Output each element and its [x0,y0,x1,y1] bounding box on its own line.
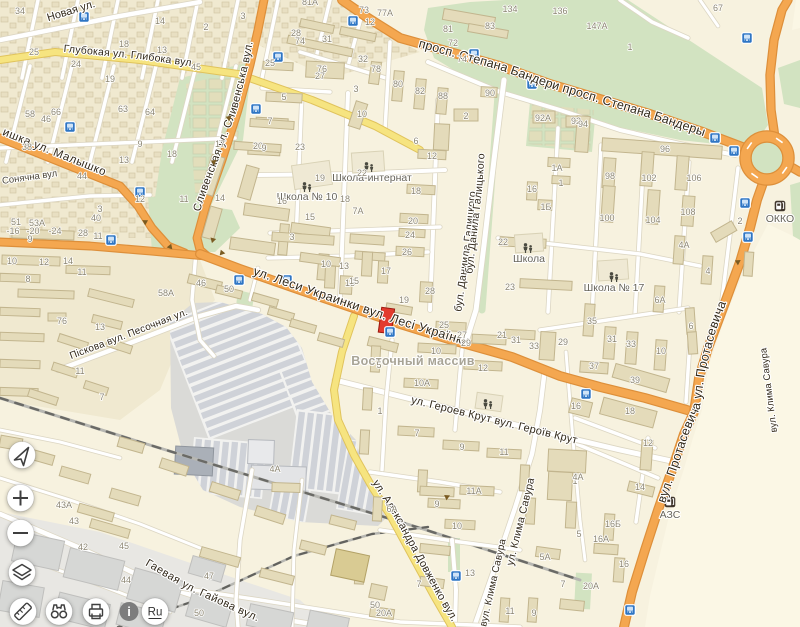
svg-text:12: 12 [39,257,49,267]
svg-text:82: 82 [415,86,425,96]
svg-text:10: 10 [7,256,17,266]
svg-text:44: 44 [121,575,131,585]
svg-text:9: 9 [137,139,142,149]
svg-text:136: 136 [552,6,567,16]
svg-text:46: 46 [41,114,51,124]
svg-text:33: 33 [529,341,539,351]
svg-text:16: 16 [619,559,629,569]
svg-text:11: 11 [93,231,102,241]
svg-text:9: 9 [459,442,464,452]
svg-text:16: 16 [277,196,287,206]
svg-text:80: 80 [393,79,403,89]
svg-text:25: 25 [29,47,39,57]
svg-text:67: 67 [713,3,723,13]
svg-text:32: 32 [358,54,368,64]
svg-text:11: 11 [505,606,514,616]
svg-text:7: 7 [560,579,565,589]
svg-text:108: 108 [680,207,695,217]
svg-text:74: 74 [457,54,467,64]
svg-text:134: 134 [502,4,517,14]
svg-text:22: 22 [498,237,508,247]
svg-text:14: 14 [635,482,645,492]
svg-text:3: 3 [353,84,358,94]
svg-text:12: 12 [643,438,653,448]
svg-text:12: 12 [427,151,437,161]
svg-text:92А: 92А [535,113,551,123]
svg-text:6А: 6А [654,295,665,305]
svg-text:Ru: Ru [148,607,163,619]
svg-text:13: 13 [119,155,129,165]
svg-text:76: 76 [57,316,67,326]
svg-text:7: 7 [416,579,421,589]
svg-text:74: 74 [295,36,305,46]
svg-text:90: 90 [485,88,495,98]
svg-text:45: 45 [191,62,201,72]
svg-text:1А: 1А [551,163,562,173]
svg-text:35: 35 [587,316,597,326]
svg-text:10А: 10А [414,378,430,388]
svg-text:5: 5 [576,529,581,539]
svg-text:1Б: 1Б [541,202,552,212]
svg-text:58А: 58А [158,288,174,298]
svg-text:9: 9 [261,143,266,153]
svg-text:5: 5 [376,360,381,370]
svg-text:7: 7 [414,428,419,438]
svg-text:14: 14 [155,16,165,26]
svg-text:73: 73 [359,5,369,15]
svg-text:16А: 16А [593,534,609,544]
svg-text:10: 10 [452,521,462,531]
svg-text:13: 13 [157,45,167,55]
svg-text:3: 3 [240,11,245,21]
svg-text:34: 34 [15,6,25,16]
svg-text:44: 44 [77,171,87,181]
svg-text:5: 5 [281,92,286,102]
svg-text:4А: 4А [269,464,280,474]
svg-text:18: 18 [119,39,129,49]
svg-text:-24: -24 [48,226,61,236]
svg-text:42: 42 [78,542,88,552]
svg-text:13: 13 [465,568,475,578]
svg-text:13: 13 [95,322,105,332]
svg-text:10: 10 [431,346,441,356]
svg-text:12: 12 [135,194,145,204]
svg-text:10: 10 [357,109,367,119]
svg-text:106: 106 [686,173,701,183]
svg-text:104: 104 [645,215,660,225]
svg-text:Школа: Школа [513,253,545,265]
svg-text:11А: 11А [466,486,481,496]
svg-text:31: 31 [607,334,617,344]
svg-text:7А: 7А [352,206,363,216]
svg-text:1: 1 [377,406,382,416]
svg-text:22: 22 [357,168,367,178]
svg-text:28: 28 [425,286,435,296]
svg-text:9: 9 [531,608,536,618]
svg-text:9: 9 [27,234,32,244]
svg-text:5А: 5А [539,552,550,562]
svg-text:16: 16 [527,184,537,194]
svg-text:12: 12 [478,363,488,373]
svg-text:28: 28 [78,228,88,238]
svg-text:7: 7 [99,392,104,402]
svg-text:Школа № 17: Школа № 17 [584,282,645,294]
svg-text:3: 3 [289,232,294,242]
svg-text:46: 46 [196,278,206,288]
svg-text:9: 9 [434,499,439,509]
svg-text:24: 24 [71,59,81,69]
svg-text:6А: 6А [386,504,397,514]
svg-text:2: 2 [463,111,468,121]
svg-text:4А: 4А [572,472,583,482]
svg-text:58: 58 [25,109,35,119]
svg-text:81: 81 [443,24,453,34]
svg-text:15: 15 [349,276,359,286]
svg-text:7: 7 [267,116,272,126]
svg-text:13: 13 [339,261,349,271]
svg-text:94: 94 [578,119,588,129]
svg-text:11: 11 [499,447,508,457]
svg-text:38: 38 [22,142,32,152]
svg-text:19: 19 [399,295,409,305]
svg-text:2: 2 [203,22,208,32]
svg-text:14: 14 [215,193,225,203]
svg-text:20А: 20А [583,581,599,591]
svg-text:33: 33 [626,339,636,349]
svg-text:102: 102 [641,173,656,183]
svg-text:-16: -16 [6,226,19,236]
svg-text:12: 12 [365,17,375,27]
svg-text:18: 18 [340,194,350,204]
svg-text:14: 14 [63,256,73,266]
svg-text:31: 31 [511,335,521,345]
svg-text:6: 6 [688,321,693,331]
svg-text:Восточный массив: Восточный массив [351,354,474,368]
svg-text:20: 20 [408,216,418,226]
svg-text:81А: 81А [302,0,318,7]
svg-text:31: 31 [322,34,332,44]
svg-text:1: 1 [558,178,563,188]
svg-text:64: 64 [145,107,155,117]
svg-text:11: 11 [179,194,188,204]
svg-text:i: i [127,604,131,619]
svg-text:16: 16 [571,401,581,411]
svg-text:18: 18 [411,186,421,196]
svg-text:76: 76 [317,64,327,74]
svg-text:11: 11 [75,366,84,376]
svg-text:10: 10 [656,346,666,356]
svg-text:72: 72 [448,38,458,48]
svg-text:43А: 43А [56,500,72,510]
svg-text:26: 26 [402,247,412,257]
svg-text:25: 25 [265,58,275,68]
svg-text:АЗС: АЗС [660,509,681,521]
svg-text:98: 98 [605,171,615,181]
svg-text:19: 19 [105,74,115,84]
svg-text:45: 45 [119,541,129,551]
svg-text:8: 8 [25,274,30,284]
svg-text:43: 43 [69,516,79,526]
svg-text:50: 50 [224,284,234,294]
svg-text:4А: 4А [678,240,689,250]
svg-text:66: 66 [51,107,61,117]
svg-text:10: 10 [321,259,331,269]
svg-text:88: 88 [438,91,448,101]
svg-text:83: 83 [485,21,495,31]
svg-text:147А: 147А [586,21,607,31]
svg-text:27: 27 [457,330,467,340]
svg-text:100: 100 [599,213,614,223]
svg-text:39: 39 [630,375,640,385]
svg-text:18: 18 [167,149,177,159]
svg-text:Школа-интернат: Школа-интернат [332,172,412,184]
svg-text:78: 78 [371,64,381,74]
svg-text:ОККО: ОККО [766,213,794,225]
svg-text:18: 18 [625,406,635,416]
svg-text:25: 25 [439,320,449,330]
svg-text:17: 17 [215,139,225,149]
svg-text:77А: 77А [377,8,393,18]
svg-text:29: 29 [558,337,568,347]
svg-text:17: 17 [381,266,391,276]
svg-text:4: 4 [705,266,710,276]
svg-text:63: 63 [118,104,128,114]
svg-text:6: 6 [413,136,418,146]
svg-text:15: 15 [305,212,315,222]
svg-text:2: 2 [737,216,742,226]
svg-text:50: 50 [194,608,204,618]
svg-text:24: 24 [405,230,415,240]
svg-text:96: 96 [660,144,670,154]
svg-text:1: 1 [627,42,632,52]
svg-text:50: 50 [370,600,380,610]
svg-text:23: 23 [295,142,305,152]
svg-text:37: 37 [589,361,599,371]
svg-text:21: 21 [497,330,507,340]
svg-text:11: 11 [77,267,86,277]
svg-text:19: 19 [315,173,325,183]
svg-text:16Б: 16Б [605,519,621,529]
svg-text:40: 40 [91,213,101,223]
svg-text:47: 47 [204,571,214,581]
svg-text:23: 23 [505,282,515,292]
